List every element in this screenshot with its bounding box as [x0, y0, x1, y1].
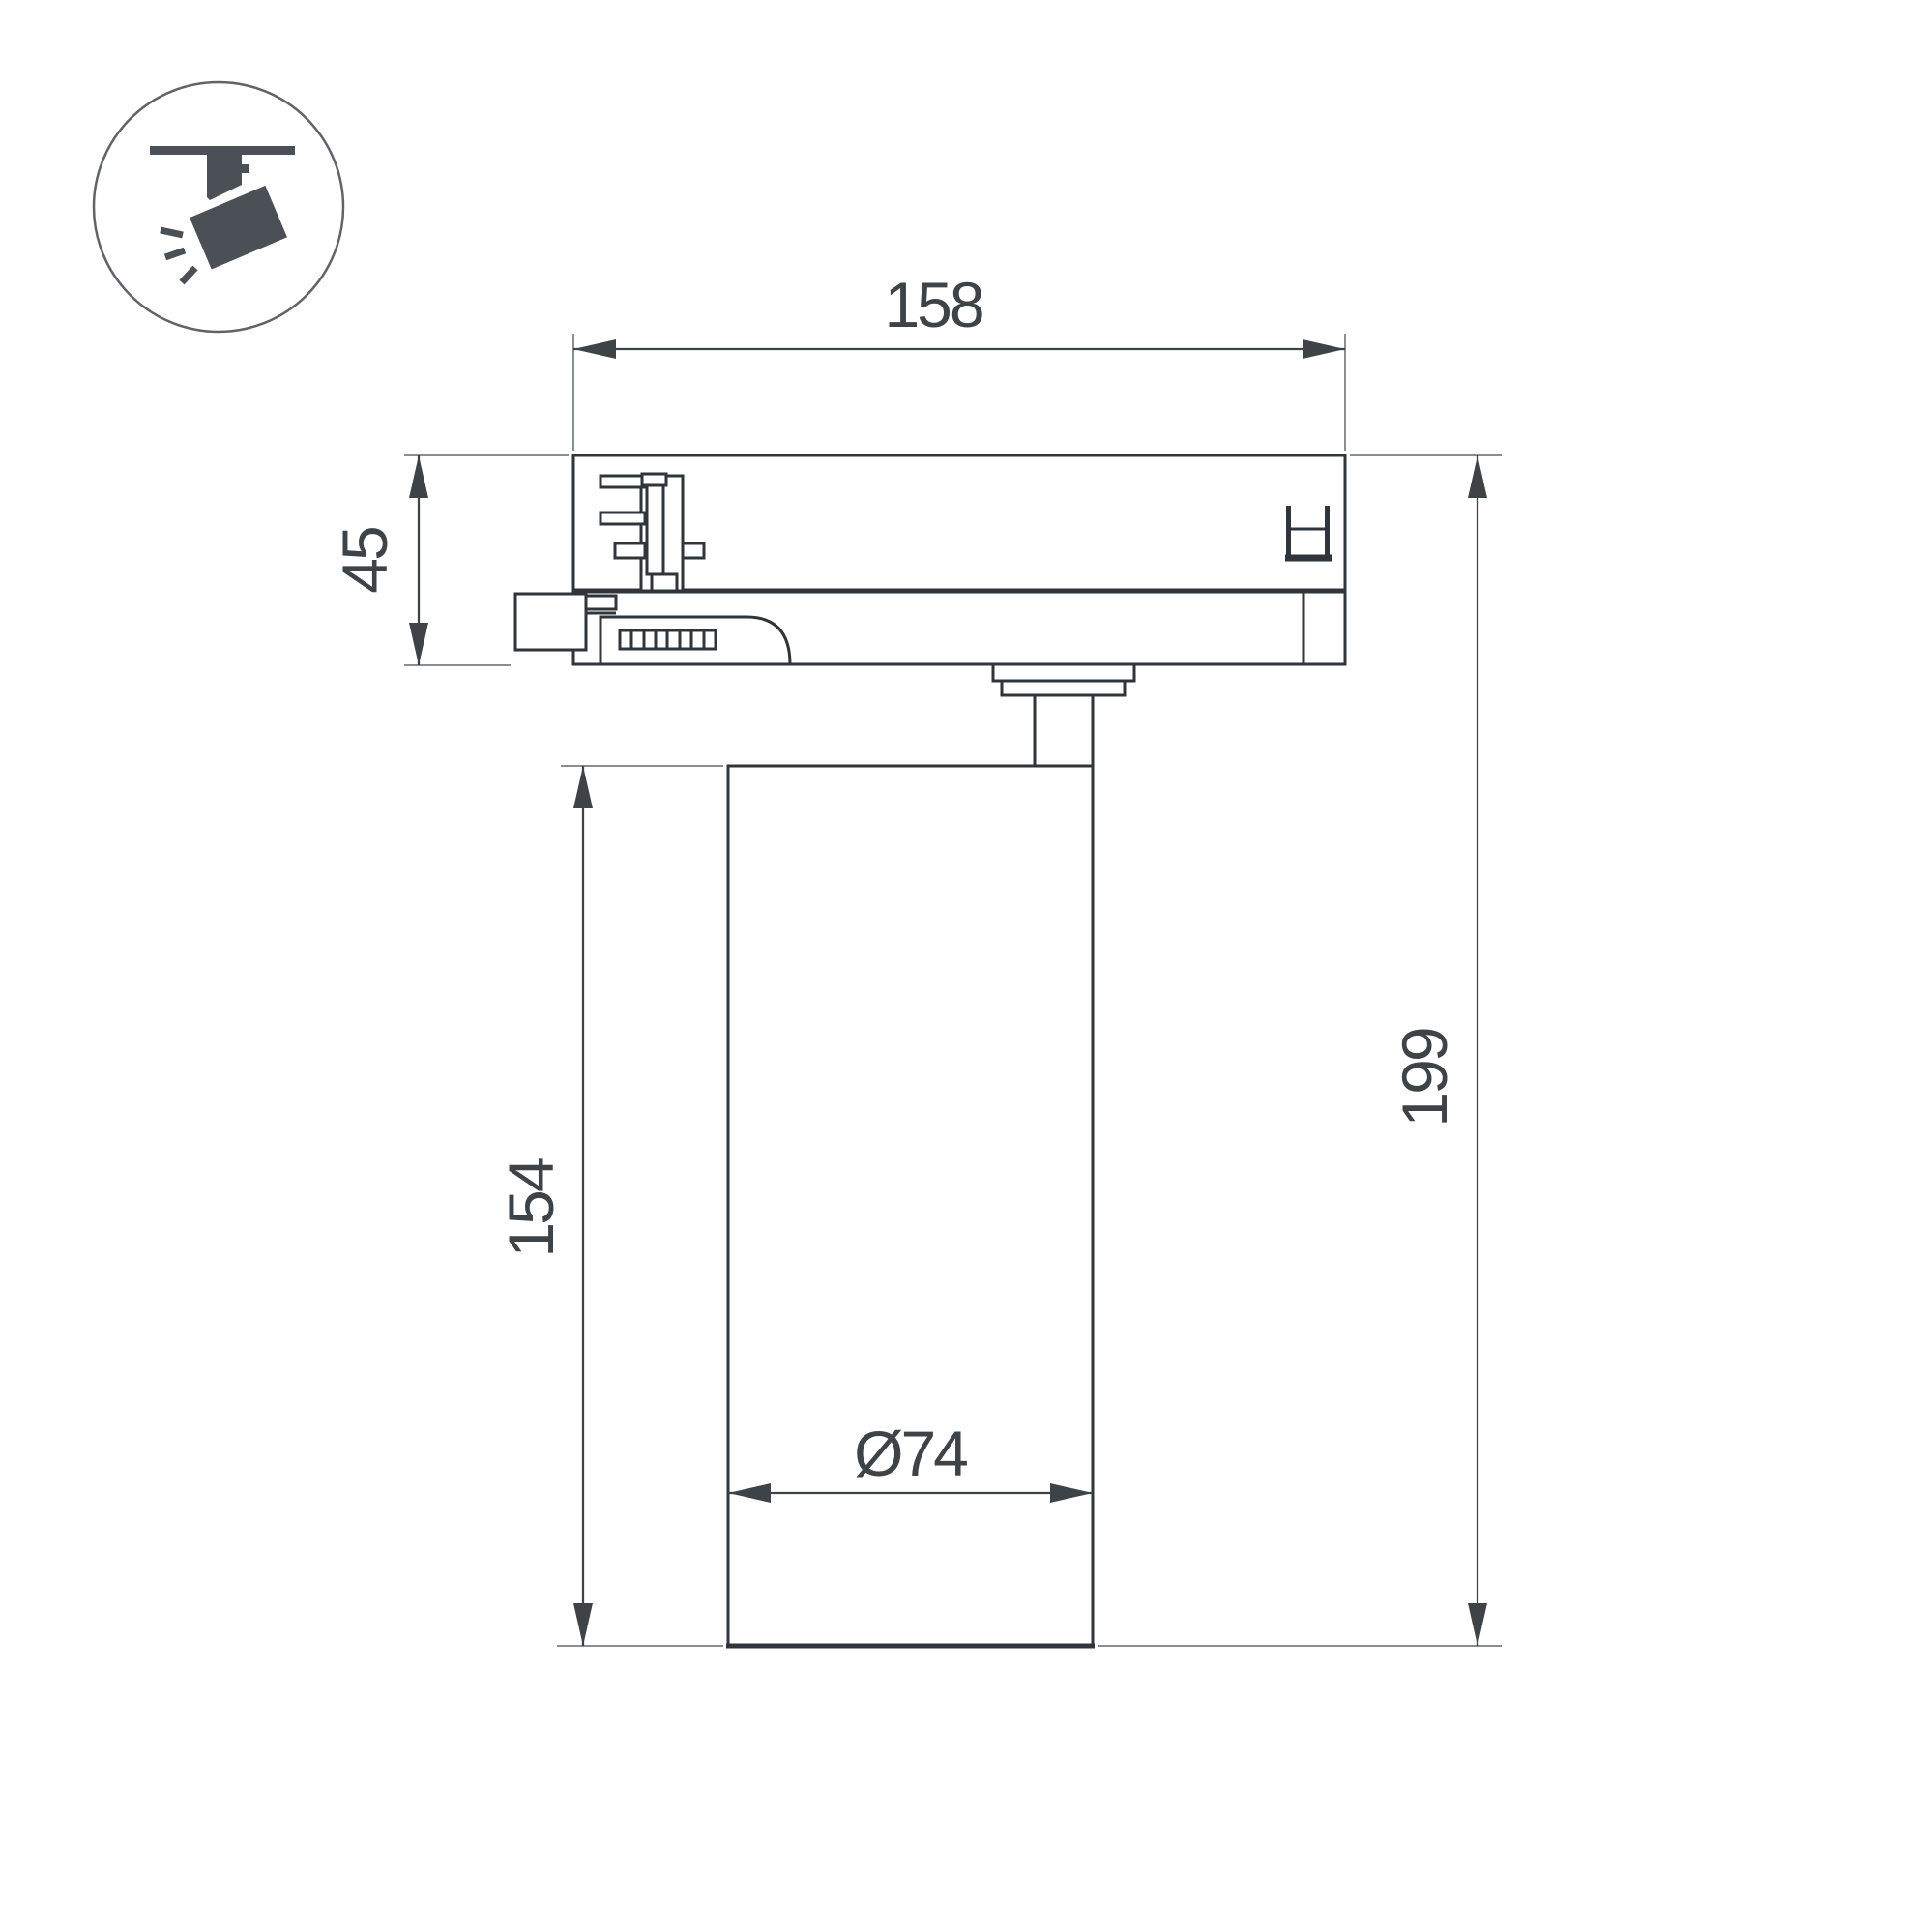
adapter-latch-box — [515, 594, 586, 650]
arrow-left-icon — [573, 339, 616, 359]
arrow-down-icon — [409, 623, 428, 665]
arrow-up-icon — [409, 455, 428, 498]
track-spotlight-icon — [94, 82, 343, 332]
arrow-right-icon — [1303, 339, 1345, 359]
adapter-main-box — [573, 455, 1345, 591]
technical-drawing: 158 45 154 199 — [0, 0, 1932, 1932]
drawing-canvas: 158 45 154 199 — [0, 0, 1932, 1932]
arrow-down-icon — [1468, 1603, 1487, 1646]
dimension-adapter-height: 45 — [329, 455, 428, 665]
swivel-flange-upper — [993, 664, 1134, 681]
dimension-adapter-width: 158 — [573, 269, 1345, 359]
dimension-label-adapter-width: 158 — [884, 269, 981, 340]
adapter-latch-connector — [586, 596, 616, 609]
dimension-label-body-diameter: Ø74 — [854, 1418, 967, 1489]
dimension-body-height: 154 — [495, 766, 593, 1646]
swivel-flange-lower — [1002, 681, 1125, 695]
lamp-body-cylinder — [728, 766, 1093, 1646]
dimension-total-height: 199 — [1389, 455, 1487, 1646]
arrow-down-icon — [573, 1603, 593, 1646]
arrow-up-icon — [573, 766, 593, 808]
dimension-label-total-height: 199 — [1389, 1029, 1460, 1127]
dimension-label-body-height: 154 — [495, 1158, 567, 1257]
dimension-label-adapter-height: 45 — [329, 528, 400, 594]
swivel-stem — [1035, 695, 1093, 766]
vent-grille — [620, 630, 716, 649]
arrow-up-icon — [1468, 455, 1487, 498]
icon-track-rail — [150, 146, 295, 155]
